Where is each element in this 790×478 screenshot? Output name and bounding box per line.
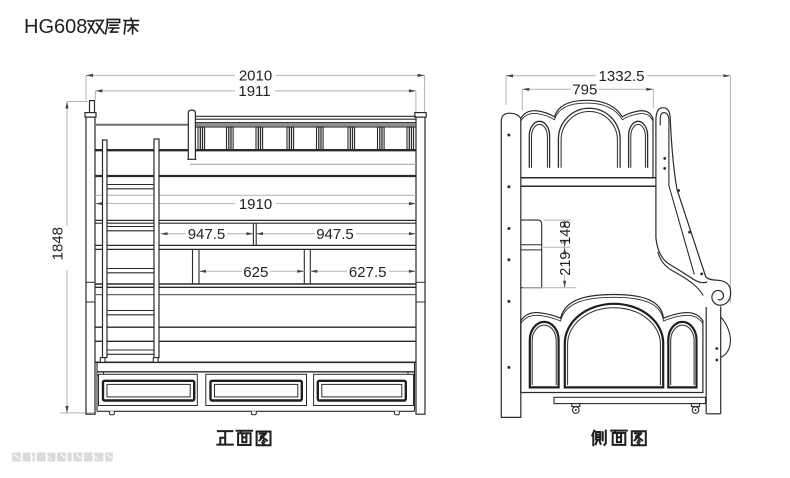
- svg-text:795: 795: [572, 82, 597, 99]
- svg-text:625: 625: [243, 264, 268, 281]
- svg-text:627.5: 627.5: [349, 264, 387, 281]
- svg-text:1910: 1910: [239, 196, 272, 213]
- svg-text:2010: 2010: [239, 68, 272, 85]
- svg-text:148: 148: [558, 221, 574, 245]
- svg-text:1848: 1848: [50, 227, 67, 260]
- svg-text:947.5: 947.5: [316, 226, 354, 243]
- svg-text:HG608: HG608: [24, 16, 87, 38]
- svg-text:947.5: 947.5: [188, 226, 226, 243]
- svg-text:1332.5: 1332.5: [599, 68, 645, 85]
- svg-text:1911: 1911: [238, 83, 270, 100]
- svg-text:219: 219: [558, 251, 574, 275]
